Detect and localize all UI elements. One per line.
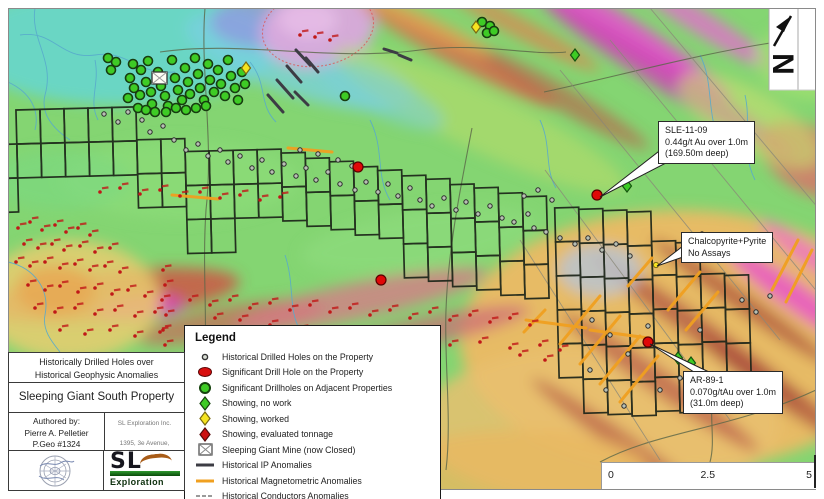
raster-blob	[15, 265, 95, 315]
legend-item: Sleeping Giant Mine (now Closed)	[195, 442, 440, 458]
legend-icon-ip-line	[195, 462, 215, 468]
red-drillhole-marker	[153, 310, 157, 314]
red-drillhole-marker	[138, 192, 142, 196]
historical-hole-marker	[532, 226, 536, 230]
adjacent-drillhole-marker	[227, 72, 236, 81]
historical-hole-marker	[442, 196, 446, 200]
red-drillhole-marker	[36, 246, 40, 250]
historical-hole-marker	[140, 118, 144, 122]
callout-chalcopyrite: Chalcopyrite+Pyrite No Assays	[681, 232, 773, 263]
historical-hole-marker	[622, 404, 626, 408]
historical-hole-marker	[314, 178, 318, 182]
historical-hole-marker	[658, 388, 662, 392]
red-drillhole-marker	[58, 266, 62, 270]
historical-hole-marker	[270, 170, 274, 174]
red-drillhole-marker	[238, 318, 242, 322]
historical-hole-marker	[250, 166, 254, 170]
adjacent-drillhole-marker	[192, 104, 201, 113]
adjacent-drillhole-marker	[144, 57, 153, 66]
historical-hole-marker	[573, 242, 577, 246]
historical-hole-marker	[148, 130, 152, 134]
red-drillhole-marker	[118, 186, 122, 190]
historical-hole-marker	[226, 160, 230, 164]
historical-hole-marker	[418, 198, 422, 202]
adjacent-drillhole-marker	[142, 106, 151, 115]
red-drillhole-marker	[248, 306, 252, 310]
red-drillhole-marker	[368, 313, 372, 317]
legend-item: Historical Magnetometric Anomalies	[195, 473, 440, 489]
red-drillhole-marker	[28, 220, 32, 224]
historical-hole-marker	[550, 198, 554, 202]
significant-drillhole-marker	[592, 190, 602, 200]
historical-hole-marker	[464, 200, 468, 204]
adjacent-drillhole-marker	[171, 74, 180, 83]
adjacent-drillhole-marker	[234, 96, 243, 105]
adjacent-drillhole-marker	[161, 92, 170, 101]
red-drillhole-marker	[161, 268, 165, 272]
legend-item: Showing, no work	[195, 396, 440, 412]
red-drillhole-marker	[14, 260, 18, 264]
red-drillhole-marker	[163, 283, 167, 287]
historical-hole-marker	[364, 180, 368, 184]
callout-line: Chalcopyrite+Pyrite	[688, 236, 766, 248]
historical-hole-marker	[608, 333, 612, 337]
historical-hole-marker	[544, 230, 548, 234]
adjacent-drillhole-marker	[341, 92, 350, 101]
adjacent-drillhole-marker	[129, 60, 138, 69]
logo-subtext: Exploration	[110, 477, 180, 487]
historical-hole-marker	[282, 162, 286, 166]
red-drillhole-marker	[163, 343, 167, 347]
red-drillhole-marker	[43, 288, 47, 292]
red-drillhole-marker	[93, 250, 97, 254]
adjacent-drillhole-marker	[172, 104, 181, 113]
red-drillhole-marker	[508, 346, 512, 350]
historical-hole-marker	[184, 148, 188, 152]
red-drillhole-marker	[278, 195, 282, 199]
historical-hole-marker	[206, 154, 210, 158]
historical-hole-marker	[698, 328, 702, 332]
callout-line: 0.070g/tAu over 1.0m	[690, 387, 776, 399]
red-drillhole-marker	[53, 223, 57, 227]
historical-hole-marker	[454, 208, 458, 212]
legend-item-label: Showing, evaluated tonnage	[222, 429, 333, 439]
red-drillhole-marker	[64, 230, 68, 234]
author-name: Pierre A. Pelletier	[9, 428, 104, 440]
legend-item-label: Significant Drill Hole on the Property	[222, 367, 363, 377]
historical-hole-marker	[430, 204, 434, 208]
historical-hole-marker	[646, 324, 650, 328]
company-name: SL Exploration Inc.	[105, 419, 184, 429]
red-drillhole-marker	[160, 298, 164, 302]
red-drillhole-marker	[28, 264, 32, 268]
legend-item: Significant Drill Hole on the Property	[195, 365, 440, 381]
historical-hole-marker	[536, 188, 540, 192]
author-company-box: Authored by: Pierre A. Pelletier P.Geo #…	[8, 412, 185, 451]
red-drillhole-marker	[73, 262, 77, 266]
red-drillhole-marker	[388, 308, 392, 312]
callout-line: No Assays	[688, 248, 766, 260]
red-drillhole-marker	[33, 306, 37, 310]
legend-icon-green-diamond	[195, 396, 215, 411]
map-subtitle-line2: Historical Geophysic Anomalies	[9, 369, 184, 382]
north-label: N	[766, 53, 799, 75]
historical-hole-marker	[126, 110, 130, 114]
legend-item-label: Historical Conductors Anomalies	[222, 491, 349, 499]
red-drillhole-marker	[558, 348, 562, 352]
historical-hole-marker	[522, 194, 526, 198]
historical-hole-marker	[590, 318, 594, 322]
red-drillhole-marker	[448, 343, 452, 347]
callout-ar-89-1: AR-89-1 0.070g/tAu over 1.0m (31.0m deep…	[683, 371, 783, 414]
red-drillhole-marker	[213, 316, 217, 320]
red-drillhole-marker	[538, 343, 542, 347]
page-title: Sleeping Giant South Property	[19, 391, 174, 403]
adjacent-drillhole-marker	[204, 60, 213, 69]
legend-item: Historical IP Anomalies	[195, 458, 440, 474]
adjacent-drillhole-marker	[126, 74, 135, 83]
red-drillhole-marker	[158, 330, 162, 334]
red-drillhole-marker	[93, 286, 97, 290]
scale-end-tick	[814, 455, 816, 488]
adjacent-drillhole-marker	[217, 80, 226, 89]
legend-item-label: Sleeping Giant Mine (now Closed)	[222, 445, 356, 455]
red-drillhole-marker	[133, 334, 137, 338]
historical-hole-marker	[116, 120, 120, 124]
legend-item-label: Significant Drillholes on Adjacent Prope…	[222, 383, 392, 393]
red-drillhole-marker	[543, 358, 547, 362]
legend-item: Historical Drilled Holes on the Property	[195, 349, 440, 365]
red-drillhole-marker	[110, 292, 114, 296]
adjacent-drillhole-marker	[186, 90, 195, 99]
red-drillhole-marker	[228, 298, 232, 302]
historical-hole-marker	[196, 142, 200, 146]
scale-label-0: 0	[608, 469, 614, 481]
historical-hole-marker	[304, 166, 308, 170]
historical-hole-marker	[161, 124, 165, 128]
red-drillhole-marker	[348, 306, 352, 310]
red-drillhole-marker	[328, 38, 332, 42]
historical-hole-marker	[768, 294, 772, 298]
adjacent-drillhole-marker	[241, 80, 250, 89]
adjacent-drillhole-marker	[142, 78, 151, 87]
adjacent-drillhole-marker	[184, 78, 193, 87]
author-cell: Authored by: Pierre A. Pelletier P.Geo #…	[9, 413, 105, 450]
historical-hole-marker	[376, 190, 380, 194]
legend-item: Showing, evaluated tonnage	[195, 427, 440, 443]
geologist-seal-icon	[34, 452, 78, 490]
red-drillhole-marker	[408, 316, 412, 320]
legend-item-label: Historical Drilled Holes on the Property	[222, 352, 373, 362]
legend-box: Legend Historical Drilled Holes on the P…	[184, 325, 441, 499]
red-drillhole-marker	[298, 33, 302, 37]
red-drillhole-marker	[198, 190, 202, 194]
adjacent-drillhole-marker	[490, 27, 499, 36]
stamp-logo-box: SL Exploration	[8, 450, 185, 491]
legend-icon-cond-line	[195, 493, 215, 499]
adjacent-drillhole-marker	[162, 108, 171, 117]
adjacent-drillhole-marker	[214, 66, 223, 75]
callout-line: AR-89-1	[690, 375, 776, 387]
red-drillhole-marker	[268, 301, 272, 305]
red-drillhole-marker	[76, 226, 80, 230]
red-drillhole-marker	[258, 198, 262, 202]
adjacent-drillhole-marker	[191, 54, 200, 63]
callout-line: SLE-11-09	[665, 125, 748, 137]
adjacent-drillhole-marker	[221, 92, 230, 101]
adjacent-drillhole-marker	[196, 84, 205, 93]
legend-item-label: Showing, worked	[222, 414, 289, 424]
red-drillhole-marker	[178, 194, 182, 198]
historical-hole-marker	[628, 254, 632, 258]
red-drillhole-marker	[428, 310, 432, 314]
red-drillhole-marker	[508, 316, 512, 320]
legend-item-label: Showing, no work	[222, 398, 291, 408]
historical-hole-marker	[588, 368, 592, 372]
adjacent-drillhole-marker	[174, 86, 183, 95]
red-drillhole-marker	[113, 308, 117, 312]
historical-hole-marker	[476, 212, 480, 216]
red-drillhole-marker	[98, 190, 102, 194]
callout-line: (31.0m deep)	[690, 398, 776, 410]
significant-drillhole-marker	[376, 275, 386, 285]
callout-line: 0.44g/t Au over 1.0m	[665, 137, 748, 149]
red-drillhole-marker	[118, 270, 122, 274]
red-drillhole-marker	[88, 268, 92, 272]
red-drillhole-marker	[328, 310, 332, 314]
red-drillhole-marker	[126, 288, 130, 292]
red-drillhole-marker	[108, 246, 112, 250]
stamp-cell	[9, 451, 104, 490]
legend-icon-small-hole	[195, 350, 215, 364]
red-drillhole-marker	[16, 226, 20, 230]
historical-hole-marker	[740, 298, 744, 302]
red-drillhole-marker	[164, 313, 168, 317]
legend-item-label: Historical IP Anomalies	[222, 460, 312, 470]
red-drillhole-marker	[103, 264, 107, 268]
historical-hole-marker	[600, 248, 604, 252]
company-cell: SL Exploration Inc. 1395, 3e Avenue, Act…	[105, 413, 184, 450]
red-drillhole-marker	[143, 294, 147, 298]
adjacent-drillhole-marker	[194, 70, 203, 79]
red-drillhole-marker	[478, 340, 482, 344]
red-drillhole-marker	[158, 188, 162, 192]
north-arrow: N	[766, 8, 816, 90]
red-drillhole-marker	[448, 318, 452, 322]
historical-hole-marker	[526, 212, 530, 216]
adjacent-drillhole-marker	[137, 66, 146, 75]
red-drillhole-marker	[76, 290, 80, 294]
adjacent-drillhole-marker	[168, 56, 177, 65]
author-label: Authored by:	[9, 416, 104, 428]
legend-icon-red-ellipse	[195, 366, 215, 378]
red-drillhole-marker	[161, 328, 165, 332]
red-drillhole-marker	[218, 196, 222, 200]
adjacent-drillhole-marker	[182, 106, 191, 115]
historical-hole-marker	[218, 148, 222, 152]
historical-hole-marker	[604, 388, 608, 392]
historical-hole-marker	[316, 152, 320, 156]
north-arrow-panel	[769, 8, 816, 90]
red-drillhole-marker	[468, 313, 472, 317]
historical-hole-marker	[353, 188, 357, 192]
legend-items: Historical Drilled Holes on the Property…	[195, 349, 440, 499]
historical-hole-marker	[294, 174, 298, 178]
red-drillhole-marker	[22, 242, 26, 246]
map-title-box: Sleeping Giant South Property	[8, 382, 185, 413]
company-address1: 1395, 3e Avenue,	[105, 439, 184, 449]
red-drillhole-marker	[133, 314, 137, 318]
red-drillhole-marker	[108, 328, 112, 332]
historical-hole-marker	[386, 182, 390, 186]
legend-item-label: Historical Magnetometric Anomalies	[222, 476, 362, 486]
red-drillhole-marker	[288, 308, 292, 312]
adjacent-drillhole-marker	[231, 84, 240, 93]
adjacent-drillhole-marker	[136, 91, 145, 100]
red-drillhole-marker	[238, 193, 242, 197]
red-drillhole-marker	[50, 242, 54, 246]
historical-hole-marker	[586, 236, 590, 240]
historical-hole-marker	[488, 204, 492, 208]
legend-icon-mine-box	[195, 443, 215, 456]
historical-hole-marker	[754, 310, 758, 314]
legend-item: Showing, worked	[195, 411, 440, 427]
historical-hole-marker	[260, 158, 264, 162]
adjacent-drillhole-marker	[206, 76, 215, 85]
significant-drillhole-marker	[353, 162, 363, 172]
legend-icon-yellow-diamond	[195, 411, 215, 426]
adjacent-drillhole-marker	[181, 64, 190, 73]
red-drillhole-marker	[518, 353, 522, 357]
historical-hole-marker	[614, 242, 618, 246]
map-screenshot: N SLE-11-09 0.44g/t Au over 1.0m (169.50…	[0, 0, 824, 499]
adjacent-drillhole-marker	[210, 88, 219, 97]
historical-hole-marker	[102, 112, 106, 116]
red-drillhole-marker	[62, 248, 66, 252]
legend-icon-red-diamond	[195, 427, 215, 442]
red-drillhole-marker	[308, 303, 312, 307]
historical-hole-marker	[500, 216, 504, 220]
red-drillhole-marker	[93, 312, 97, 316]
historical-hole-marker	[336, 158, 340, 162]
red-drillhole-marker	[313, 35, 317, 39]
red-drillhole-marker	[488, 320, 492, 324]
adjacent-drillhole-marker	[151, 108, 160, 117]
red-drillhole-marker	[188, 298, 192, 302]
historical-hole-marker	[626, 352, 630, 356]
map-subtitle-line1: Historically Drilled Holes over	[9, 356, 184, 369]
historical-hole-marker	[408, 186, 412, 190]
historical-hole-marker	[338, 182, 342, 186]
adjacent-drillhole-marker	[124, 94, 133, 103]
historical-hole-marker	[172, 138, 176, 142]
adjacent-drillhole-marker	[147, 88, 156, 97]
red-drillhole-marker	[26, 283, 30, 287]
historical-hole-marker	[558, 236, 562, 240]
historical-hole-marker	[396, 194, 400, 198]
legend-icon-mag-line	[195, 478, 215, 484]
red-drillhole-marker	[58, 284, 62, 288]
red-drillhole-marker	[208, 303, 212, 307]
scale-label-2-5: 2.5	[700, 469, 715, 481]
historical-hole-marker	[678, 376, 682, 380]
red-drillhole-marker	[53, 310, 57, 314]
red-drillhole-marker	[78, 244, 82, 248]
sleeping-giant-mine-icon	[152, 72, 167, 84]
adjacent-drillhole-marker	[178, 96, 187, 105]
legend-icon-green-circle	[195, 381, 215, 395]
adjacent-drillhole-marker	[224, 56, 233, 65]
red-drillhole-marker	[58, 328, 62, 332]
legend-item: Historical Conductors Anomalies	[195, 489, 440, 499]
legend-item: Significant Drillholes on Adjacent Prope…	[195, 380, 440, 396]
callout-line: (169.50m deep)	[665, 148, 748, 160]
map-subtitle-box: Historically Drilled Holes over Historic…	[8, 352, 185, 383]
scale-label-5: 5	[806, 469, 812, 481]
red-drillhole-marker	[83, 332, 87, 336]
red-drillhole-marker	[73, 306, 77, 310]
red-drillhole-marker	[88, 233, 92, 237]
historical-hole-marker	[512, 220, 516, 224]
red-drillhole-marker	[40, 228, 44, 232]
historical-hole-marker	[326, 170, 330, 174]
red-drillhole-marker	[43, 260, 47, 264]
company-logo: SL Exploration	[104, 451, 184, 490]
legend-title: Legend	[195, 332, 440, 344]
scale-bar: 0 2.5 5	[601, 462, 816, 489]
adjacent-drillhole-marker	[107, 66, 116, 75]
historical-hole-marker	[238, 154, 242, 158]
callout-sle-11-09: SLE-11-09 0.44g/t Au over 1.0m (169.50m …	[658, 121, 755, 164]
red-drillhole-marker	[528, 323, 532, 327]
adjacent-drillhole-marker	[202, 102, 211, 111]
historical-hole-marker	[298, 148, 302, 152]
